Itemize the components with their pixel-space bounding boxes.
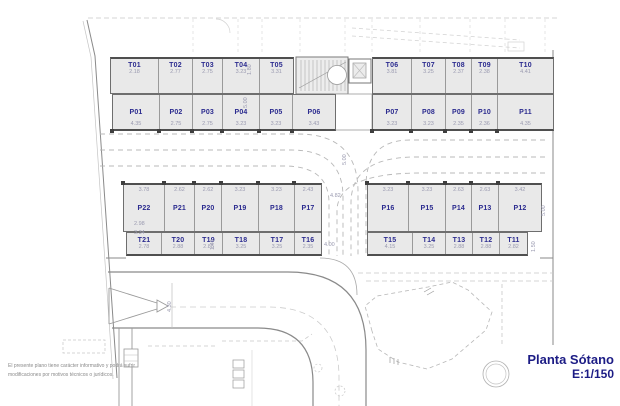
storage-stall: T154.15	[368, 233, 412, 254]
title-block: Planta Sótano E:1/150	[527, 352, 614, 381]
stall-label: P07	[385, 109, 398, 116]
stall-dimension: 2.18	[129, 69, 140, 75]
stall-group-storage-top-right: T063.81T073.25T082.37T092.38T104.41	[372, 57, 554, 94]
stall-dimension: 3.25	[424, 244, 435, 250]
stall-dimension: 2.77	[170, 69, 181, 75]
stall-label: P15	[420, 205, 433, 212]
stall-dimension: 3.31	[271, 69, 282, 75]
stall-label: T01	[128, 62, 141, 69]
stall-label: T05	[270, 62, 283, 69]
parking-stall: P032.75	[192, 95, 222, 129]
stall-label: T17	[271, 237, 284, 244]
storage-stall: T183.25	[222, 233, 259, 254]
floor-plan-canvas: T012.18T022.77T032.75T043.23T053.31T063.…	[0, 0, 620, 406]
parking-stall: P153.23	[408, 185, 445, 231]
stall-group-parking-mid-right: P163.23P153.23P142.63P132.63P123.42	[367, 183, 542, 232]
stall-dimension: 3.23	[383, 187, 394, 193]
stall-label: T03	[201, 62, 214, 69]
stall-label: P08	[422, 109, 435, 116]
stall-group-parking-mid-left: P223.78P212.62P202.62P193.23P183.23P172.…	[123, 183, 322, 232]
stall-dimension: 2.78	[139, 244, 150, 250]
storage-stall: T212.78	[127, 233, 161, 254]
dimension-annotation: 5.00	[342, 154, 348, 165]
storage-stall: T043.23	[222, 59, 259, 93]
stall-label: T11	[507, 237, 519, 244]
stall-label: P14	[452, 205, 465, 212]
stall-dimension: 2.88	[481, 244, 492, 250]
stall-dimension: 2.62	[174, 187, 185, 193]
stall-group-parking-top-right: P073.23P083.23P092.35P102.36P114.35	[372, 94, 554, 131]
stall-label: P05	[269, 109, 282, 116]
storage-stall: T112.82	[499, 233, 527, 254]
stall-label: P01	[129, 109, 142, 116]
parking-stall: P102.36	[471, 95, 497, 129]
storage-stall: T122.88	[472, 233, 499, 254]
stall-label: T16	[302, 237, 315, 244]
stall-dimension: 3.23	[422, 187, 433, 193]
storage-stall: T032.75	[192, 59, 222, 93]
stall-group-storage-bottom-right: T154.15T143.25T132.88T122.88T112.82	[367, 232, 528, 256]
storage-stall: T022.77	[158, 59, 192, 93]
parking-stall: P053.23	[259, 95, 292, 129]
stall-dimension: 3.25	[423, 69, 434, 75]
stall-dimension: 2.35	[303, 244, 314, 250]
parking-stall: P114.35	[497, 95, 553, 129]
plan-title: Planta Sótano	[527, 352, 614, 367]
stall-dimension: 3.81	[387, 69, 398, 75]
stall-dimension: 2.62	[203, 187, 214, 193]
dimension-annotation: 5.00	[243, 97, 249, 108]
stall-dimension: 2.35	[453, 121, 464, 127]
parking-stall: P132.63	[471, 185, 498, 231]
stall-label: T13	[453, 237, 466, 244]
stall-dimension: 4.35	[131, 121, 142, 127]
storage-stall: T162.35	[294, 233, 321, 254]
stall-group-storage-bottom-left: T212.78T202.88T192.88T183.25T173.25T162.…	[126, 232, 322, 256]
stall-dimension: 2.75	[171, 121, 182, 127]
parking-stall: P212.62	[164, 185, 194, 231]
parking-stall: P163.23	[368, 185, 408, 231]
stall-dimension: 3.43	[309, 121, 320, 127]
stall-dimension: 3.23	[271, 187, 282, 193]
stall-label: P04	[234, 109, 247, 116]
stall-label: P21	[173, 205, 186, 212]
parking-stall: P043.23	[222, 95, 259, 129]
stall-dimension: 2.63	[453, 187, 464, 193]
disclaimer-line-2: modificaciones por motivos técnicos o ju…	[8, 371, 135, 380]
stall-dimension: 2.82	[508, 244, 519, 250]
stall-label: T09	[478, 62, 491, 69]
stall-label: T14	[423, 237, 436, 244]
dimension-annotation: 3.34	[134, 230, 145, 236]
storage-stall: T092.38	[471, 59, 497, 93]
stall-dimension: 2.43	[303, 187, 314, 193]
stall-dimension: 3.25	[236, 244, 247, 250]
stall-group-storage-top-left: T012.18T022.77T032.75T043.23T053.31	[110, 57, 294, 94]
parking-stall: P073.23	[373, 95, 411, 129]
dimension-annotation: 2.98	[134, 221, 145, 227]
stall-dimension: 2.63	[480, 187, 491, 193]
stall-label: P22	[137, 205, 150, 212]
stall-label: T04	[235, 62, 248, 69]
stall-label: P10	[478, 109, 491, 116]
dimension-annotation: 1.40	[210, 239, 216, 250]
stall-label: T08	[452, 62, 465, 69]
storage-stall: T104.41	[497, 59, 553, 93]
stall-dimension: 2.75	[202, 69, 213, 75]
stall-label: P12	[513, 205, 526, 212]
stall-label: T06	[386, 62, 399, 69]
stall-label: P06	[307, 109, 320, 116]
parking-stall: P014.35	[113, 95, 159, 129]
parking-stall: P142.63	[445, 185, 471, 231]
stall-label: P09	[452, 109, 465, 116]
stall-label: P20	[201, 205, 214, 212]
parking-stall: P092.35	[445, 95, 471, 129]
stall-label: P19	[233, 205, 246, 212]
storage-stall: T143.25	[412, 233, 445, 254]
stall-label: P13	[478, 205, 491, 212]
stall-label: P17	[301, 205, 314, 212]
parking-stall: P193.23	[221, 185, 258, 231]
storage-stall: T063.81	[373, 59, 411, 93]
stall-group-parking-top-left: P014.35P022.75P032.75P043.23P053.23P063.…	[112, 94, 336, 131]
storage-stall: T073.25	[411, 59, 445, 93]
stall-label: P11	[519, 109, 532, 116]
stall-label: T20	[172, 237, 185, 244]
storage-stall: T132.88	[445, 233, 472, 254]
stall-dimension: 4.15	[385, 244, 396, 250]
dimension-annotation: 4.82	[330, 193, 341, 199]
stall-dimension: 2.36	[479, 121, 490, 127]
parking-stall: P022.75	[159, 95, 192, 129]
disclaimer-note: El presente plano tiene carácter informa…	[8, 362, 135, 379]
stall-dimension: 3.42	[515, 187, 526, 193]
parking-stall: P183.23	[258, 185, 294, 231]
stall-label: P03	[201, 109, 214, 116]
disclaimer-line-1: El presente plano tiene carácter informa…	[8, 362, 135, 371]
stall-dimension: 2.37	[453, 69, 464, 75]
stall-dimension: 3.23	[423, 121, 434, 127]
parking-stall: P172.43	[294, 185, 321, 231]
stall-label: T12	[480, 237, 493, 244]
stall-label: T07	[422, 62, 435, 69]
parking-stall: P083.23	[411, 95, 445, 129]
stall-label: P18	[270, 205, 283, 212]
stall-label: P02	[169, 109, 182, 116]
stall-dimension: 3.23	[271, 121, 282, 127]
storage-stall: T082.37	[445, 59, 471, 93]
stall-dimension: 3.23	[387, 121, 398, 127]
stall-dimension: 2.88	[454, 244, 465, 250]
parking-stall: P123.42	[498, 185, 541, 231]
stall-dimension: 4.41	[520, 69, 531, 75]
stall-dimension: 3.23	[236, 69, 247, 75]
stall-dimension: 2.38	[479, 69, 490, 75]
storage-stall: T053.31	[259, 59, 293, 93]
stall-label: T10	[519, 62, 532, 69]
dimension-annotation: 4.30	[167, 301, 173, 312]
stall-dimension: 3.78	[139, 187, 150, 193]
plan-scale: E:1/150	[527, 367, 614, 381]
storage-stall: T202.88	[161, 233, 194, 254]
stall-dimension: 3.23	[235, 187, 246, 193]
dimension-annotation: 1.50	[531, 241, 537, 252]
dimension-annotation: 1.80	[247, 64, 253, 75]
stall-dimension: 2.88	[173, 244, 184, 250]
stall-layer: T012.18T022.77T032.75T043.23T053.31T063.…	[0, 0, 620, 406]
dimension-annotation: 4.00	[324, 242, 335, 248]
stall-label: T15	[384, 237, 397, 244]
stall-label: T02	[169, 62, 182, 69]
stall-dimension: 4.35	[520, 121, 531, 127]
stall-label: T21	[138, 237, 151, 244]
stall-dimension: 3.25	[272, 244, 283, 250]
stall-label: T18	[235, 237, 248, 244]
storage-stall: T012.18	[111, 59, 158, 93]
storage-stall: T173.25	[259, 233, 294, 254]
stall-label: P16	[381, 205, 394, 212]
stall-dimension: 2.75	[202, 121, 213, 127]
stall-dimension: 3.23	[236, 121, 247, 127]
parking-stall: P063.43	[292, 95, 335, 129]
storage-stall: T192.88	[194, 233, 222, 254]
dimension-annotation: 5.00	[541, 205, 547, 216]
parking-stall: P202.62	[194, 185, 221, 231]
